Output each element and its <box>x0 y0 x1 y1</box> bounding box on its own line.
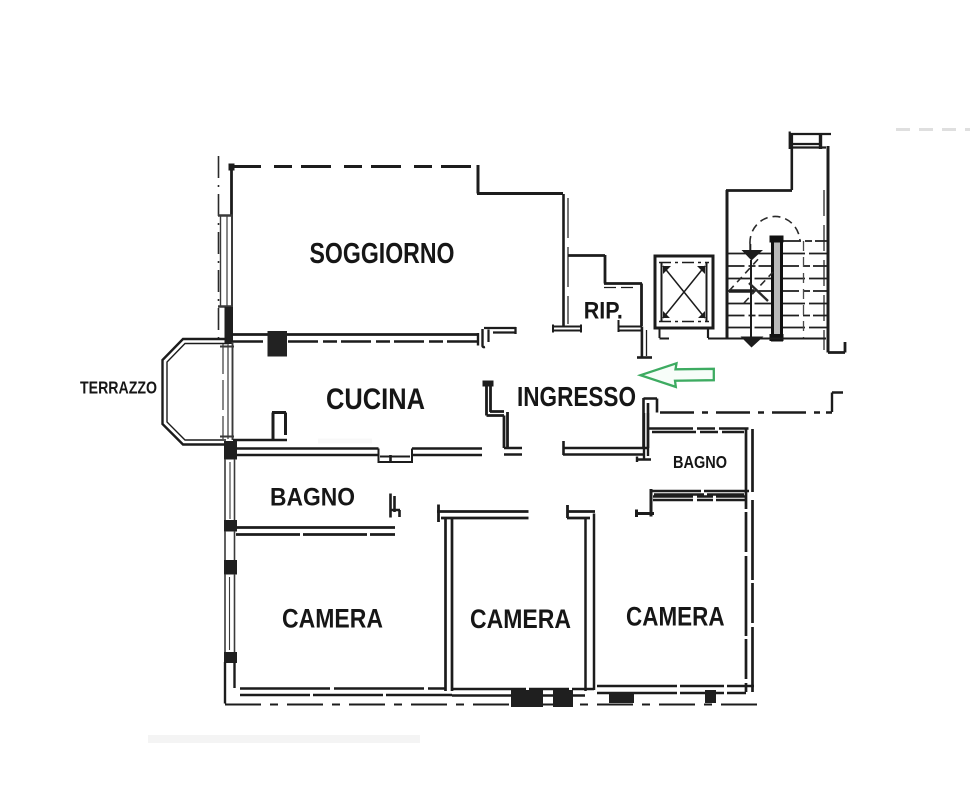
svg-text:BAGNO: BAGNO <box>673 452 727 472</box>
svg-text:RIP.: RIP. <box>584 298 623 325</box>
svg-text:CAMERA: CAMERA <box>470 604 571 634</box>
svg-text:TERRAZZO: TERRAZZO <box>80 378 157 398</box>
svg-text:CAMERA: CAMERA <box>282 604 383 634</box>
svg-text:SOGGIORNO: SOGGIORNO <box>310 238 455 270</box>
svg-text:BAGNO: BAGNO <box>270 484 355 512</box>
svg-text:CUCINA: CUCINA <box>326 383 425 416</box>
svg-text:INGRESSO: INGRESSO <box>517 381 636 412</box>
svg-text:CAMERA: CAMERA <box>626 602 725 632</box>
